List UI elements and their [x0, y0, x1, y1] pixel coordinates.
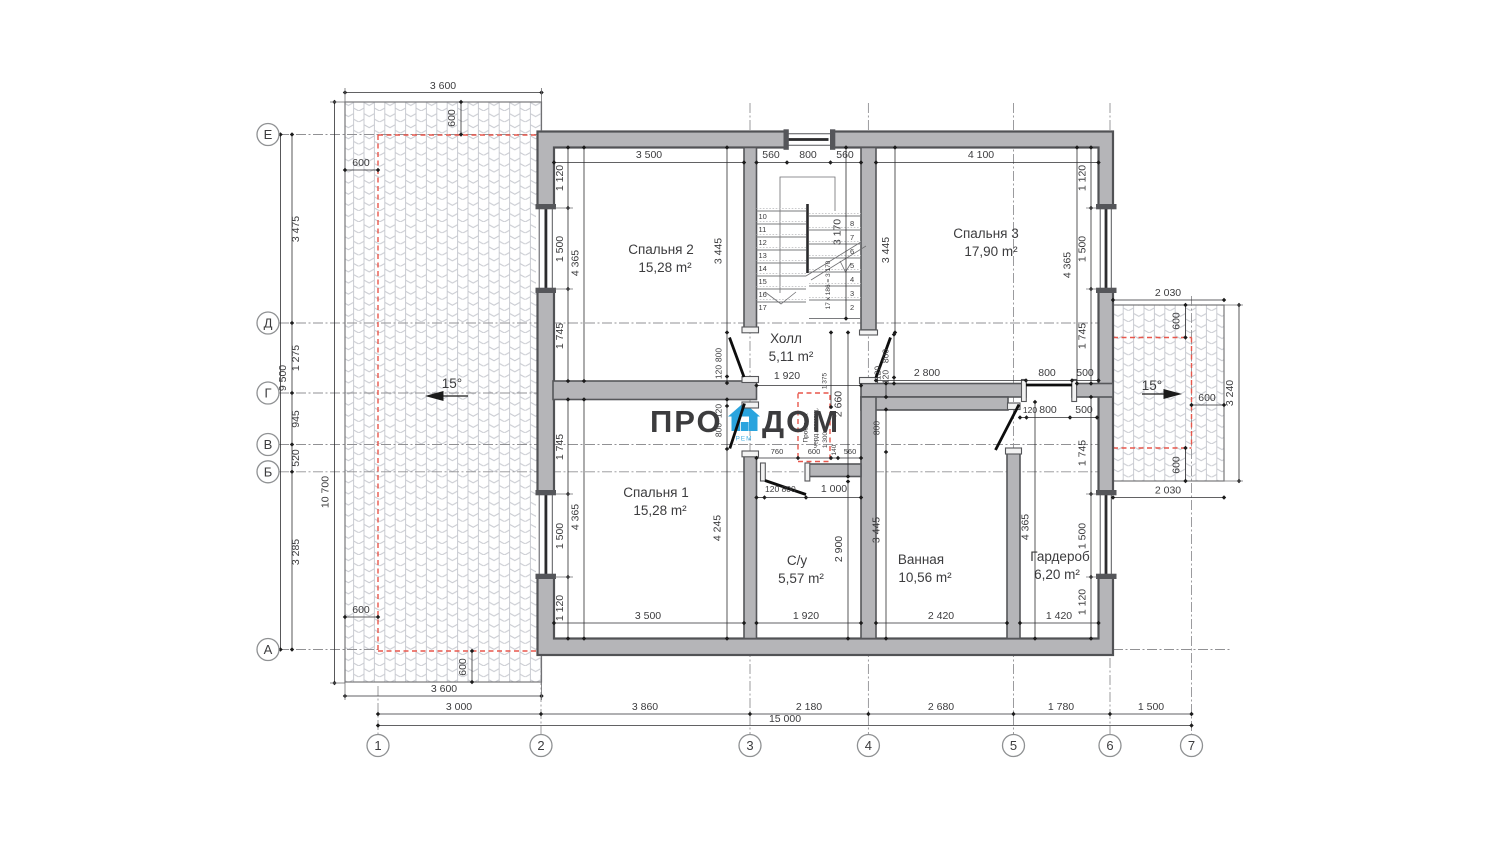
- svg-text:4: 4: [865, 738, 872, 753]
- svg-text:ДОМ: ДОМ: [762, 404, 840, 439]
- svg-text:8: 8: [850, 219, 854, 228]
- svg-text:ПРО: ПРО: [650, 404, 723, 439]
- svg-text:945: 945: [290, 410, 302, 428]
- svg-text:3 445: 3 445: [713, 238, 725, 264]
- svg-text:3 500: 3 500: [635, 610, 661, 622]
- svg-text:4 100: 4 100: [968, 149, 994, 161]
- svg-text:500: 500: [1075, 404, 1093, 416]
- svg-text:1 745: 1 745: [1077, 440, 1089, 466]
- svg-text:4 365: 4 365: [570, 504, 582, 530]
- svg-text:2: 2: [537, 738, 544, 753]
- svg-text:800: 800: [714, 423, 724, 437]
- svg-text:1 500: 1 500: [1077, 236, 1089, 262]
- svg-text:15 000: 15 000: [769, 713, 801, 725]
- svg-text:11: 11: [759, 225, 767, 234]
- svg-text:800: 800: [1039, 404, 1057, 416]
- svg-text:17 x 186 = 3 170: 17 x 186 = 3 170: [825, 260, 832, 309]
- svg-text:1 375: 1 375: [822, 372, 829, 389]
- svg-text:120: 120: [873, 366, 883, 380]
- svg-text:В: В: [264, 437, 273, 452]
- svg-text:15: 15: [759, 277, 767, 286]
- svg-text:3 600: 3 600: [430, 80, 456, 92]
- svg-text:13: 13: [759, 251, 767, 260]
- svg-text:1 745: 1 745: [554, 323, 566, 349]
- svg-text:17,90 m²: 17,90 m²: [964, 244, 1018, 259]
- svg-text:4 365: 4 365: [1062, 252, 1074, 278]
- svg-text:15°: 15°: [442, 376, 462, 391]
- svg-text:3 445: 3 445: [880, 237, 892, 263]
- svg-text:3 445: 3 445: [871, 517, 883, 543]
- svg-text:Спальня 1: Спальня 1: [623, 485, 689, 500]
- svg-text:Спальня 2: Спальня 2: [628, 242, 694, 257]
- svg-text:1 275: 1 275: [290, 345, 302, 371]
- svg-text:5: 5: [850, 261, 854, 270]
- svg-text:Б: Б: [264, 464, 273, 479]
- svg-text:16: 16: [759, 290, 767, 299]
- svg-text:7: 7: [850, 233, 854, 242]
- svg-text:1 500: 1 500: [1138, 701, 1164, 713]
- svg-text:6,20 m²: 6,20 m²: [1034, 567, 1080, 582]
- svg-text:6: 6: [850, 247, 854, 256]
- svg-text:800: 800: [872, 421, 882, 435]
- svg-text:560: 560: [836, 149, 854, 161]
- svg-text:1 420: 1 420: [1046, 610, 1072, 622]
- svg-text:Спальня 3: Спальня 3: [953, 226, 1019, 241]
- svg-text:1 500: 1 500: [1077, 523, 1089, 549]
- svg-text:2 030: 2 030: [1155, 287, 1181, 299]
- svg-text:7: 7: [1188, 738, 1195, 753]
- svg-text:1 745: 1 745: [1077, 323, 1089, 349]
- svg-text:3 500: 3 500: [636, 149, 662, 161]
- svg-text:3: 3: [850, 289, 854, 298]
- svg-text:600: 600: [457, 658, 469, 676]
- svg-text:1 500: 1 500: [554, 236, 566, 262]
- svg-text:Д: Д: [264, 316, 273, 331]
- svg-text:1 000: 1 000: [821, 483, 847, 495]
- svg-text:3 475: 3 475: [290, 216, 302, 242]
- svg-text:1 120: 1 120: [554, 595, 566, 621]
- svg-text:600: 600: [808, 447, 821, 456]
- svg-text:1 120: 1 120: [1077, 165, 1089, 191]
- svg-text:3 285: 3 285: [290, 539, 302, 565]
- svg-text:17: 17: [759, 303, 767, 312]
- svg-text:4 365: 4 365: [570, 250, 582, 276]
- svg-text:15,28 m²: 15,28 m²: [638, 260, 692, 275]
- svg-text:1 120: 1 120: [1077, 589, 1089, 615]
- svg-text:Ванная: Ванная: [898, 552, 944, 567]
- svg-text:140: 140: [831, 444, 838, 455]
- svg-text:9 500: 9 500: [277, 365, 289, 391]
- svg-text:600: 600: [1198, 392, 1216, 404]
- svg-text:2 680: 2 680: [928, 701, 954, 713]
- svg-text:4: 4: [850, 275, 854, 284]
- svg-text:10,56 m²: 10,56 m²: [898, 570, 952, 585]
- svg-text:120 800: 120 800: [765, 484, 796, 494]
- svg-text:800: 800: [714, 348, 724, 362]
- svg-text:2 660: 2 660: [833, 391, 845, 417]
- svg-text:Г: Г: [264, 386, 271, 401]
- svg-text:600: 600: [1171, 456, 1183, 474]
- svg-text:1 120: 1 120: [554, 165, 566, 191]
- svg-text:6: 6: [1106, 738, 1113, 753]
- svg-text:А: А: [264, 642, 273, 657]
- svg-text:4 365: 4 365: [1020, 514, 1032, 540]
- svg-text:800: 800: [881, 349, 891, 363]
- svg-text:РЕМ: РЕМ: [735, 436, 752, 443]
- svg-text:600: 600: [352, 157, 370, 169]
- svg-text:1 745: 1 745: [554, 434, 566, 460]
- svg-text:2 800: 2 800: [914, 367, 940, 379]
- svg-text:3 860: 3 860: [632, 701, 658, 713]
- svg-text:5: 5: [1010, 738, 1017, 753]
- svg-text:600: 600: [1171, 312, 1183, 330]
- svg-text:10: 10: [759, 212, 767, 221]
- svg-text:2 420: 2 420: [928, 610, 954, 622]
- svg-text:Холл: Холл: [770, 331, 802, 346]
- svg-text:120: 120: [714, 365, 724, 379]
- svg-text:3 000: 3 000: [446, 701, 472, 713]
- svg-text:1 920: 1 920: [793, 610, 819, 622]
- svg-text:14: 14: [759, 264, 767, 273]
- svg-text:15°: 15°: [1142, 378, 1162, 393]
- svg-text:С/у: С/у: [787, 553, 808, 568]
- svg-text:1 780: 1 780: [1048, 701, 1074, 713]
- svg-text:5,57 m²: 5,57 m²: [778, 571, 824, 586]
- svg-text:760: 760: [771, 447, 784, 456]
- svg-text:560: 560: [762, 149, 780, 161]
- svg-text:2 030: 2 030: [1155, 485, 1181, 497]
- svg-text:1 920: 1 920: [774, 370, 800, 382]
- svg-text:800: 800: [799, 149, 817, 161]
- svg-text:12: 12: [759, 238, 767, 247]
- svg-text:1: 1: [374, 738, 381, 753]
- svg-text:560: 560: [844, 447, 857, 456]
- svg-text:2 180: 2 180: [796, 701, 822, 713]
- svg-text:120: 120: [714, 404, 724, 418]
- svg-text:600: 600: [352, 604, 370, 616]
- svg-text:3 170: 3 170: [832, 219, 844, 245]
- svg-text:15,28 m²: 15,28 m²: [633, 503, 687, 518]
- svg-text:1 500: 1 500: [554, 523, 566, 549]
- svg-text:3: 3: [746, 738, 753, 753]
- svg-text:600: 600: [446, 109, 458, 127]
- svg-text:2: 2: [850, 303, 854, 312]
- svg-text:800: 800: [1038, 367, 1056, 379]
- svg-text:Гардероб: Гардероб: [1030, 549, 1090, 564]
- svg-text:4 245: 4 245: [712, 515, 724, 541]
- svg-text:3 240: 3 240: [1224, 380, 1236, 406]
- svg-text:520: 520: [290, 449, 302, 467]
- svg-text:10 700: 10 700: [320, 476, 332, 508]
- svg-text:5,11 m²: 5,11 m²: [769, 349, 814, 364]
- svg-text:2 900: 2 900: [833, 536, 845, 562]
- svg-text:3 600: 3 600: [431, 683, 457, 695]
- svg-text:Е: Е: [264, 127, 273, 142]
